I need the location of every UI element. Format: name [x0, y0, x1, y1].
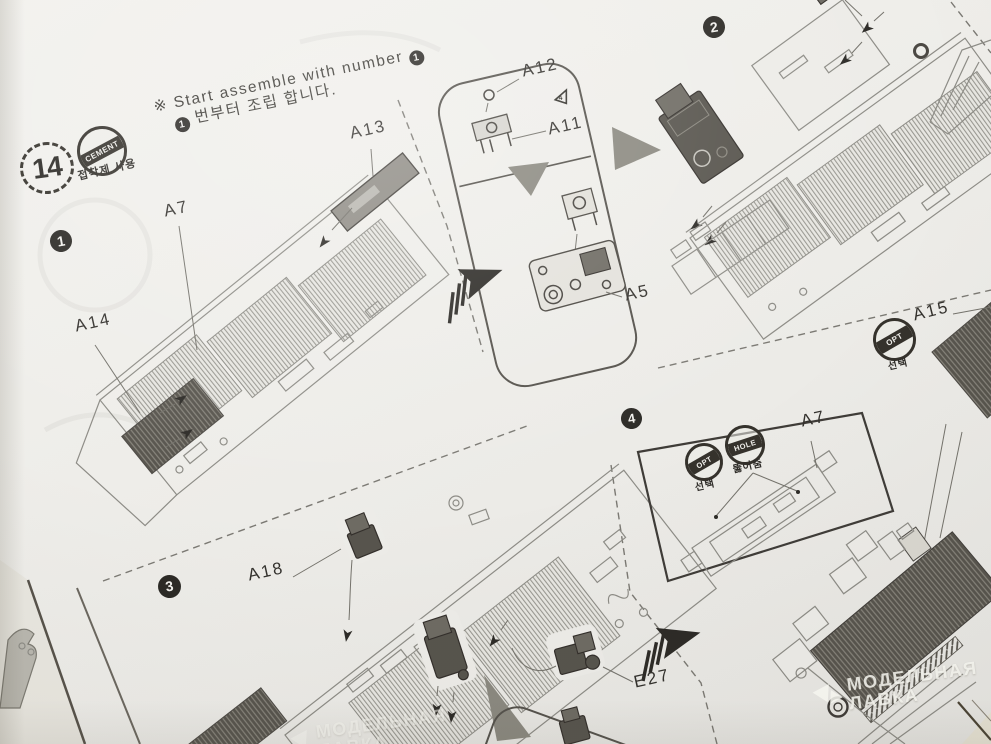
part-a5-assembled — [649, 77, 744, 185]
instruction-sheet-photo: 4 — [0, 0, 991, 744]
watermark-logo-icon-3 — [291, 725, 315, 744]
page-edge-bottom-right — [958, 700, 991, 744]
watermark-logo-icon-2 — [830, 690, 843, 705]
step4-frame-box — [638, 413, 893, 585]
detail-callout-box-1: 4 — [433, 58, 661, 392]
part-a5-plate — [528, 239, 626, 312]
step3-hull-drawing — [186, 429, 716, 744]
part-a18 — [335, 505, 391, 566]
part-above-a5 — [562, 188, 601, 232]
step2-top-panel — [752, 0, 890, 130]
part-a11 — [472, 114, 515, 155]
opt-icon-a15-label: OPT — [875, 325, 914, 355]
step1-hull-drawing — [51, 175, 451, 534]
sheet-step-counter-number: 14 — [30, 150, 63, 186]
step3-top-detail — [449, 496, 489, 525]
note-number-badge: 1 — [408, 49, 426, 67]
opt-icon-step4-label: OPT — [687, 449, 721, 475]
page-edge-bottom-left — [0, 560, 140, 744]
line-art-layer: 4 — [0, 0, 991, 744]
part-a13-panel — [331, 153, 419, 231]
svg-text:4: 4 — [558, 95, 563, 103]
hole-icon-label: HOLE — [727, 434, 763, 457]
note-number-badge-2: 1 — [174, 116, 192, 134]
callout2-part — [556, 705, 590, 744]
